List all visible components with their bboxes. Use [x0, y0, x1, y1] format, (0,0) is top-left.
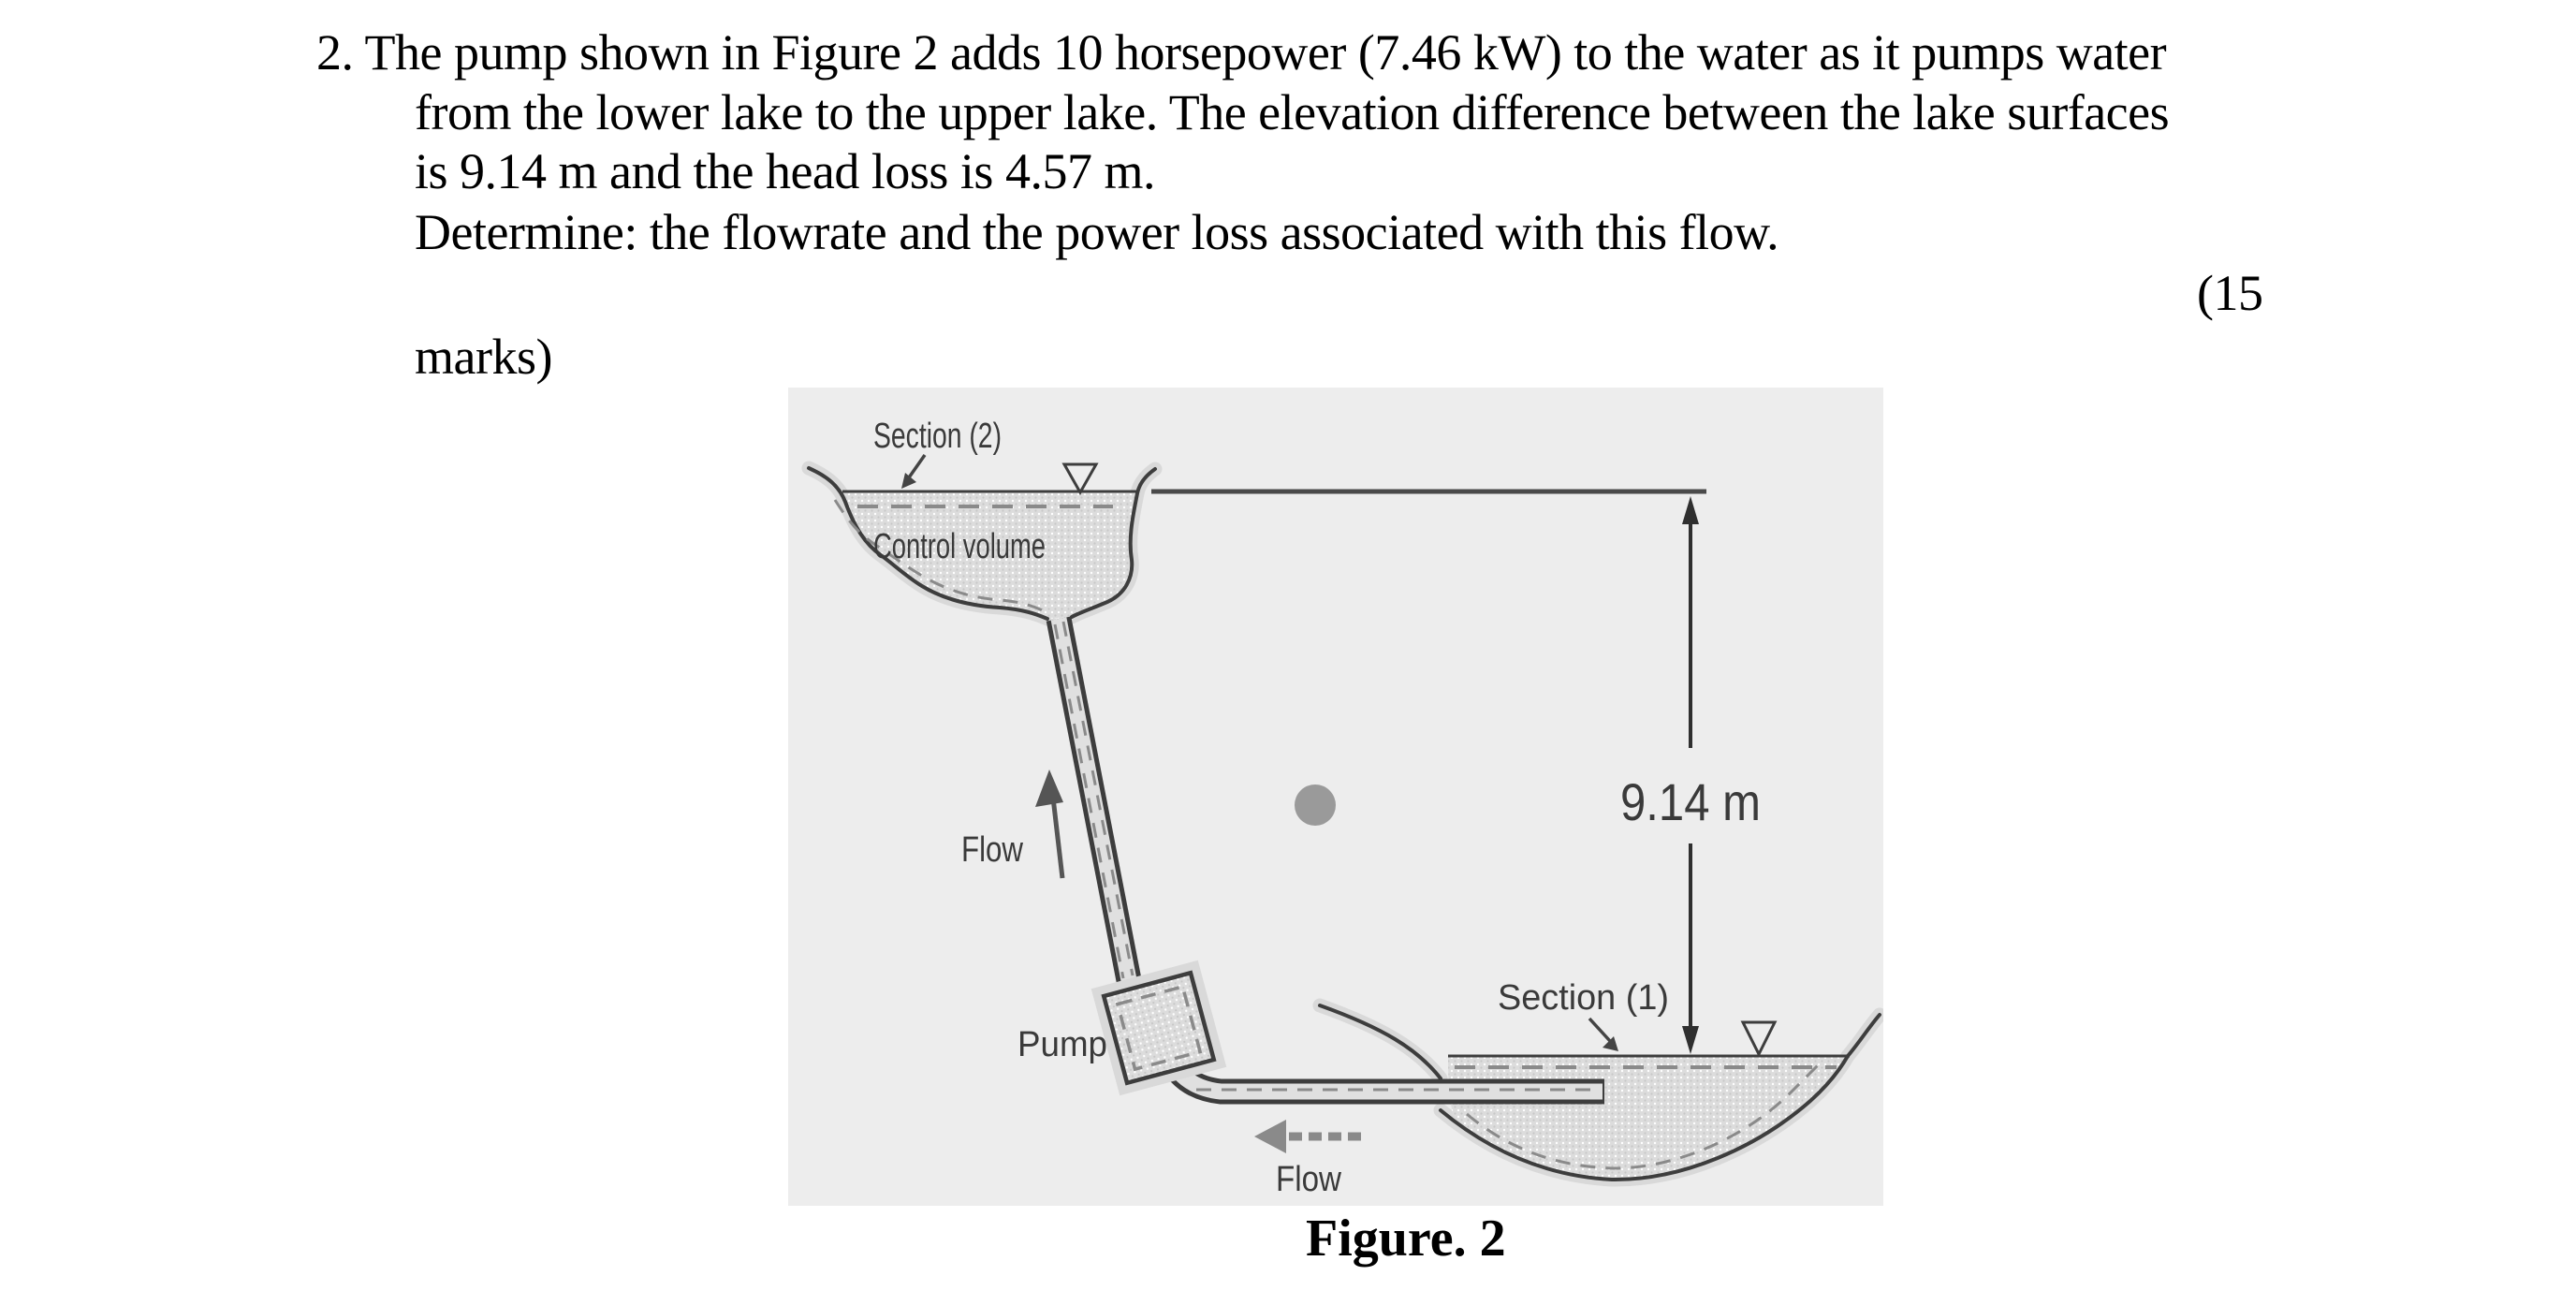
section-1-pointer [1589, 1019, 1610, 1041]
dimension-arrow-up-icon [1682, 496, 1699, 524]
problem-line-2: from the lower lake to the upper lake. T… [415, 82, 2169, 143]
flow-left-arrow-icon [1254, 1120, 1286, 1153]
lower-flow-label: Flow [1276, 1160, 1341, 1199]
figure-caption: Figure. 2 [1306, 1209, 1506, 1268]
inlet-pipe-dash-right [1063, 622, 1133, 975]
problem-marks-value: (15 [2197, 263, 2262, 324]
upper-flow-label: Flow [961, 830, 1023, 870]
pump-body [1097, 966, 1221, 1090]
pipes [1055, 619, 1133, 980]
lower-lake-bank-halo-left [1320, 1005, 1441, 1078]
inlet-pipe-bore [1059, 619, 1129, 980]
dimension-arrow-down-icon [1682, 1026, 1699, 1054]
problem-marks-word: marks) [415, 327, 552, 388]
gray-dot [1295, 784, 1336, 826]
water-level-icon [1064, 464, 1096, 492]
pump-label: Pump [1017, 1025, 1107, 1064]
upper-flow-arrow-shaft [1053, 798, 1062, 878]
section-1-label: Section (1) [1498, 978, 1669, 1018]
section-2-label: Section (2) [873, 417, 1002, 456]
elevation-label: 9.14 m [1620, 772, 1761, 831]
figure-diagram: 9.14 m Section (2) Control volume Flow P… [788, 388, 1883, 1206]
problem-line-4: Determine: the flowrate and the power lo… [415, 202, 1778, 263]
section-1-pointer-arrowhead-icon [1603, 1036, 1618, 1051]
flow-up-arrow-icon [1035, 770, 1063, 807]
inlet-pipe-dash-left [1055, 624, 1123, 978]
water-level-icon [1743, 1022, 1775, 1054]
section-2-pointer [907, 455, 925, 480]
problem-line-1: 2. The pump shown in Figure 2 adds 10 ho… [316, 22, 2166, 83]
lower-lake-bank-right [1848, 1015, 1880, 1056]
control-volume-label: Control volume [873, 527, 1046, 566]
elevation-dimension: 9.14 m [1151, 491, 1761, 1054]
problem-line-3: is 9.14 m and the head loss is 4.57 m. [415, 141, 1155, 202]
